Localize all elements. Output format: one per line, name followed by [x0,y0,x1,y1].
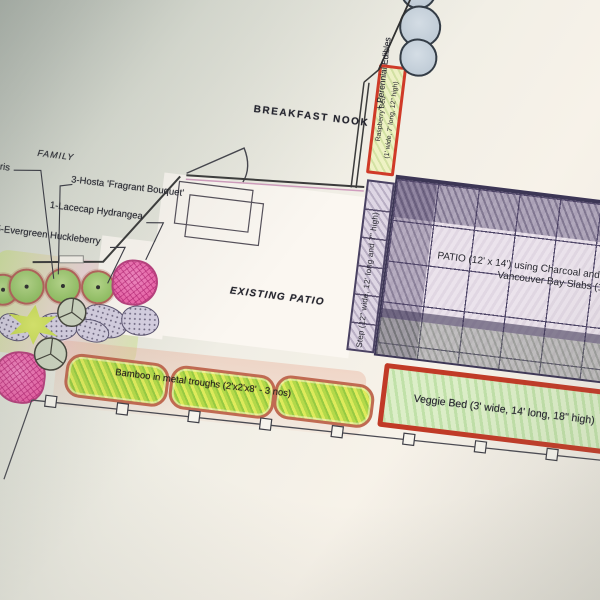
patio-step-outline [185,195,264,246]
garden-plan-photo: PATIO (12' x 14') using Charcoal and Gra… [0,0,600,600]
boulder-symbol [33,336,69,372]
boulder-symbol [56,297,87,328]
window-symbol [59,256,83,263]
leader-line-hydrangea [142,221,164,262]
boundary-line-left [4,398,32,482]
leader-line-huckleberry [106,245,126,285]
fence-posts [45,386,600,478]
plan-layer: PATIO (12' x 14') using Charcoal and Gra… [0,0,600,600]
